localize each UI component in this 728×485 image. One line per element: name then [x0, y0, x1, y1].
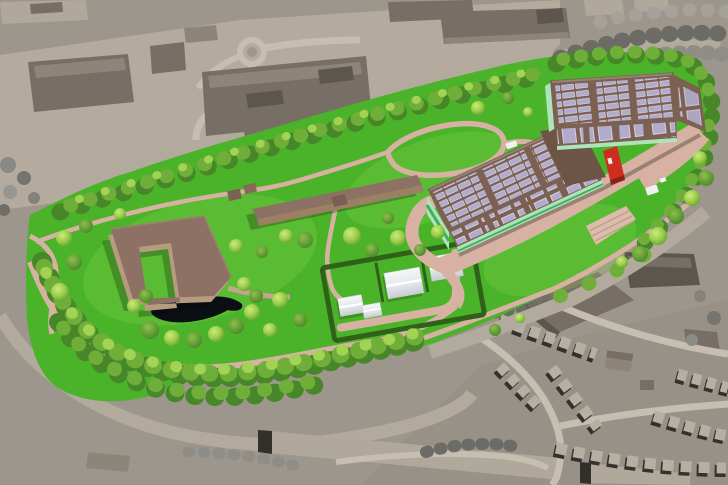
small-house — [640, 380, 654, 390]
detached-house — [605, 350, 633, 371]
roundabout-island — [247, 47, 257, 57]
slab-shadow-end — [258, 430, 272, 454]
slab-shadow-end — [580, 462, 591, 484]
solar-array — [555, 77, 673, 125]
rendering-canvas — [0, 0, 728, 485]
aerial-site-rendering — [0, 0, 728, 485]
context-building — [150, 42, 186, 74]
context-building — [30, 2, 63, 14]
context-building — [184, 25, 218, 43]
context-roof-block — [536, 8, 564, 24]
